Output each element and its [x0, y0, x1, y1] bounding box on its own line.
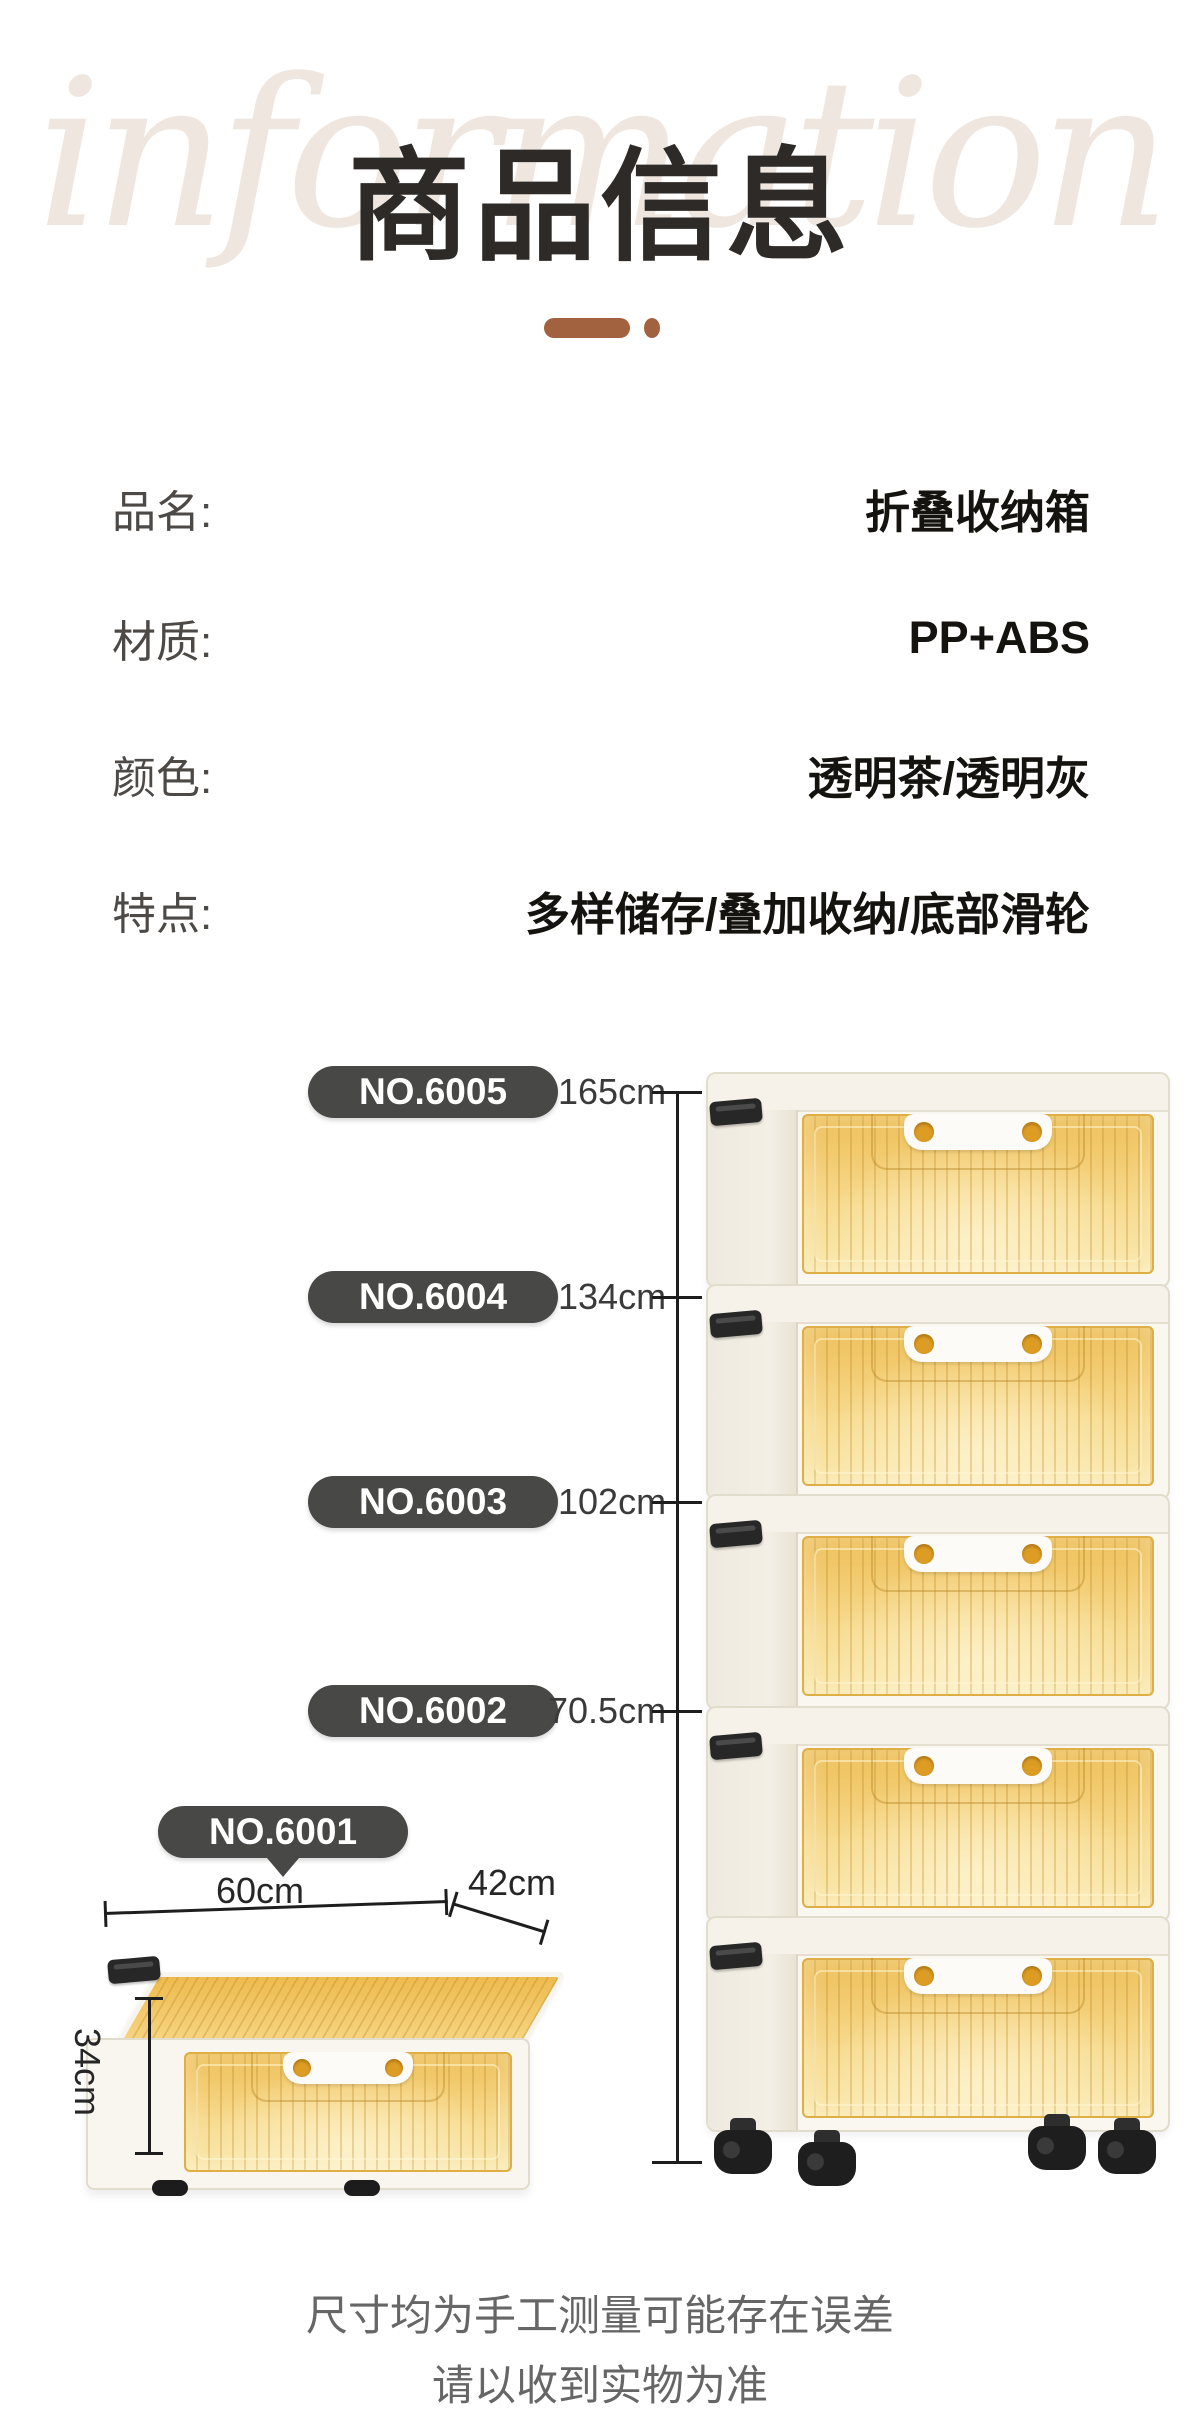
box-handle — [904, 1748, 1052, 1784]
height-label-70-5cm: 70.5cm — [548, 1689, 666, 1733]
measure-tick-165cm — [652, 1091, 702, 1094]
model-badge-label: NO.6005 — [359, 1071, 507, 1113]
box-side-face — [708, 1954, 798, 2130]
spec-label: 品名: — [112, 476, 212, 540]
title-underline — [544, 318, 630, 338]
spec-value: 折叠收纳箱 — [865, 476, 1090, 541]
storage-box-unit — [706, 1494, 1170, 1710]
spec-value: 多样储存/叠加收纳/底部滑轮 — [525, 878, 1090, 943]
model-badge-label: NO.6003 — [359, 1481, 507, 1523]
handle-hole — [1022, 1966, 1042, 1986]
side-latch-icon — [107, 1956, 161, 1984]
box-side-face — [708, 1110, 798, 1286]
footnote-line-2: 请以收到实物为准 — [0, 2352, 1200, 2413]
box-front — [86, 2038, 530, 2190]
spec-row-material: 材质: PP+ABS — [112, 610, 1090, 666]
spec-value: PP+ABS — [909, 612, 1090, 664]
height-label-165cm: 165cm — [558, 1070, 666, 1114]
footnote-line-1: 尺寸均为手工测量可能存在误差 — [0, 2282, 1200, 2343]
measure-tick-70-5cm — [652, 1710, 702, 1713]
spec-row-color: 颜色: 透明茶/透明灰 — [112, 746, 1090, 802]
product-info-page: information 商品信息 品名: 折叠收纳箱 材质: PP+ABS 颜色… — [0, 0, 1200, 2420]
spec-value: 透明茶/透明灰 — [807, 742, 1090, 807]
measure-line-floor-cap — [652, 2161, 702, 2164]
model-badge-no6001: NO.6001 — [158, 1806, 408, 1858]
box-front-panel — [802, 1748, 1154, 1908]
depth-dimension-line — [452, 1902, 547, 1934]
model-badge-label: NO.6004 — [359, 1276, 507, 1318]
handle-hole — [293, 2059, 311, 2077]
box-side-face — [708, 1744, 798, 1920]
box-lid — [708, 1496, 1168, 1534]
box-foot — [344, 2180, 380, 2196]
handle-hole — [914, 1966, 934, 1986]
handle-hole — [1022, 1122, 1042, 1142]
box-side-face — [708, 1532, 798, 1708]
handle-hole — [385, 2059, 403, 2077]
box-handle — [283, 2052, 413, 2084]
height-dimension-label: 34cm — [68, 2024, 108, 2120]
height-label-134cm: 134cm — [558, 1275, 666, 1319]
side-latch-icon — [709, 1520, 763, 1548]
box-handle — [904, 1326, 1052, 1362]
model-badge-no6004: NO.6004 — [308, 1271, 558, 1323]
storage-box-unit — [706, 1072, 1170, 1288]
handle-hole — [914, 1334, 934, 1354]
depth-dimension-label: 42cm — [452, 1862, 572, 1904]
caster-wheel-icon — [714, 2118, 774, 2174]
caster-wheel-icon — [1098, 2118, 1158, 2174]
spec-row-features: 特点: 多样储存/叠加收纳/底部滑轮 — [112, 882, 1090, 938]
model-badge-label: NO.6001 — [209, 1811, 357, 1853]
box-front-panel — [802, 1958, 1154, 2118]
height-dimension-line — [148, 1997, 151, 2155]
box-lid — [708, 1708, 1168, 1746]
model-badge-no6003: NO.6003 — [308, 1476, 558, 1528]
spec-label: 材质: — [112, 606, 212, 670]
title-underline-dot — [644, 318, 660, 338]
box-handle — [904, 1958, 1052, 1994]
box-front-panel — [802, 1114, 1154, 1274]
side-latch-icon — [709, 1310, 763, 1338]
box-lid — [708, 1286, 1168, 1324]
handle-hole — [1022, 1544, 1042, 1564]
measure-tick-102cm — [652, 1501, 702, 1504]
caster-wheel-icon — [1028, 2114, 1088, 2170]
handle-hole — [914, 1544, 934, 1564]
box-front-panel — [184, 2052, 512, 2172]
storage-box-unit — [706, 1284, 1170, 1500]
spec-label: 颜色: — [112, 742, 212, 806]
handle-hole — [1022, 1756, 1042, 1776]
box-side-face — [708, 1322, 798, 1498]
box-lid — [708, 1074, 1168, 1112]
measure-tick-134cm — [652, 1296, 702, 1299]
box-handle — [904, 1114, 1052, 1150]
side-latch-icon — [709, 1098, 763, 1126]
spec-row-name: 品名: 折叠收纳箱 — [112, 480, 1090, 536]
box-lid — [708, 1918, 1168, 1956]
height-label-102cm: 102cm — [558, 1480, 666, 1524]
single-storage-box — [86, 1968, 534, 2188]
model-badge-no6005: NO.6005 — [308, 1066, 558, 1118]
box-foot — [152, 2180, 188, 2196]
spec-label: 特点: — [112, 878, 212, 942]
handle-hole — [914, 1122, 934, 1142]
side-latch-icon — [709, 1942, 763, 1970]
storage-box-unit — [706, 1706, 1170, 1922]
page-title: 商品信息 — [0, 128, 1200, 287]
handle-hole — [1022, 1334, 1042, 1354]
caster-wheel-icon — [798, 2130, 858, 2186]
side-latch-icon — [709, 1732, 763, 1760]
model-badge-label: NO.6002 — [359, 1690, 507, 1732]
height-measure-line — [676, 1092, 679, 2164]
storage-box-unit — [706, 1916, 1170, 2132]
handle-hole — [914, 1756, 934, 1776]
box-front-panel — [802, 1536, 1154, 1696]
box-front-panel — [802, 1326, 1154, 1486]
model-badge-no6002: NO.6002 — [308, 1685, 558, 1737]
box-handle — [904, 1536, 1052, 1572]
